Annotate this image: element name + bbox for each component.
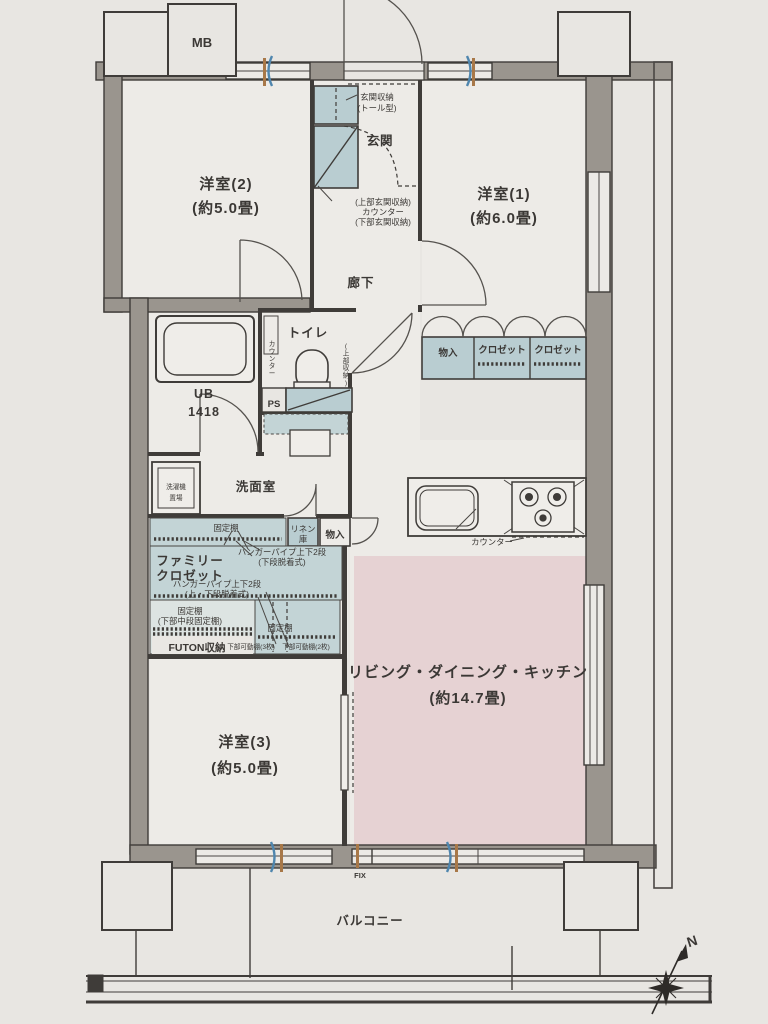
pillar-bottom-right [564,862,638,930]
monoire-b-label: 物入 [325,529,345,541]
hanger-b-line1: ハンガーパイプ上下2段 [173,579,262,589]
window-ldk-bottom [352,849,584,864]
hanger-b-line2: (上・下段脱着式) [185,589,249,599]
floorplan-canvas: N MB 洋室(2) (約5.0畳) 洋室(1) (約6.0畳) 洋室(3) (… [0,0,768,1024]
compass-arrowhead [676,944,688,962]
hanger-a-line1: ハンガーパイプ上下2段 [238,547,327,557]
senmen-label: 洗面室 [236,479,277,494]
bed3-size: (約5.0畳) [211,759,279,777]
entrance-door [344,0,422,64]
balcony-railing [86,975,712,1003]
ldk-name: リビング・ダイニング・キッチン [348,663,588,681]
room-bed1 [422,80,586,338]
kitchen-counter-label: カウンター [471,537,513,547]
futon-label: FUTON収納 [169,641,226,654]
entrance-opening [344,62,424,80]
wall-ub-toilet [258,308,262,456]
kitchen-stove [512,482,574,532]
genkan-counter-top: (上部玄関収納) [355,197,411,207]
outer-corridor-line [654,62,672,888]
sliding-door-bed3 [341,695,348,790]
genkan-label: 玄関 [366,133,393,148]
genkan-counter-mid: カウンター [362,207,404,217]
wall-left-lower [130,298,148,854]
bed2-name: 洋室(2) [199,175,252,193]
fixed-shelf-b-line2: (下部中段固定棚) [158,616,222,626]
pillar-top-left [104,12,168,76]
genkan-storage-type: (トール型) [357,103,396,113]
wall-genkan-bed1-nub [418,305,422,312]
fixed-shelf-c-label: 固定棚 [267,623,292,633]
window-bed1-right [588,172,610,292]
wall-left-upper [104,62,122,312]
genkan-storage-label: 玄関収納 [360,92,394,102]
bathtub-outer [156,316,254,382]
movable-shelf-b-label: 下部可動棚(2枚) [282,642,330,651]
monoire-a-label: 物入 [438,347,458,359]
bed1-name: 洋室(1) [477,185,530,203]
bed3-name: 洋室(3) [218,733,271,751]
ps-label: PS [268,399,281,410]
rouka-label: 廊下 [347,275,374,290]
wall-toilet-top [262,308,356,312]
pillar-bottom-left [102,862,172,930]
balcony-label: バルコニー [336,914,403,928]
window-bed3-bottom [196,849,332,864]
wall-closet-bed3 [148,654,344,659]
genkan-counter-bottom: (下部玄関収納) [355,217,411,227]
closet-a-label: クロゼット [478,344,526,356]
ub-line1: UB [194,387,214,401]
fix-label: FIX [354,871,366,880]
bed2-size: (約5.0畳) [192,199,260,217]
wall-ub-senmen-a [148,452,200,456]
family-closet-line1: ファミリー [156,554,224,568]
linen-line2: 庫 [299,534,307,544]
fixed-shelf-b-line1: 固定棚 [177,606,202,616]
pillar-top-right [558,12,630,76]
mb-label: MB [192,35,212,50]
kitchen [408,478,586,541]
floorplan-page: N MB 洋室(2) (約5.0畳) 洋室(1) (約6.0畳) 洋室(3) (… [0,0,768,1024]
ldk-size: (約14.7畳) [429,689,506,707]
linen-line1: リネン [290,524,315,534]
window-bed1-top [428,63,492,79]
washer-line1: 洗濯機 [166,482,186,491]
movable-shelf-a-label: 下部可動棚(3枚) [227,642,275,651]
washer-line2: 置場 [169,493,183,502]
north-label: N [685,932,700,950]
hanger-a-line2: (下段脱着式) [258,557,306,567]
vanity-basin [290,430,330,456]
ub-line2: 1418 [188,405,220,419]
toilet-label: トイレ [288,326,329,340]
bed1-size: (約6.0畳) [470,209,538,227]
room-bed3 [150,658,342,848]
wall-genkan-bed1-upper [418,80,422,241]
toilet-counter-label: カウンター [269,340,276,378]
closet-b-label: クロゼット [534,344,582,356]
fixed-shelf-a-label: 固定棚 [213,523,238,533]
symbol-fix-window [356,844,359,868]
wall-bed3-ldk-lower [342,790,347,846]
wall-ub-senmen-b [256,452,264,456]
